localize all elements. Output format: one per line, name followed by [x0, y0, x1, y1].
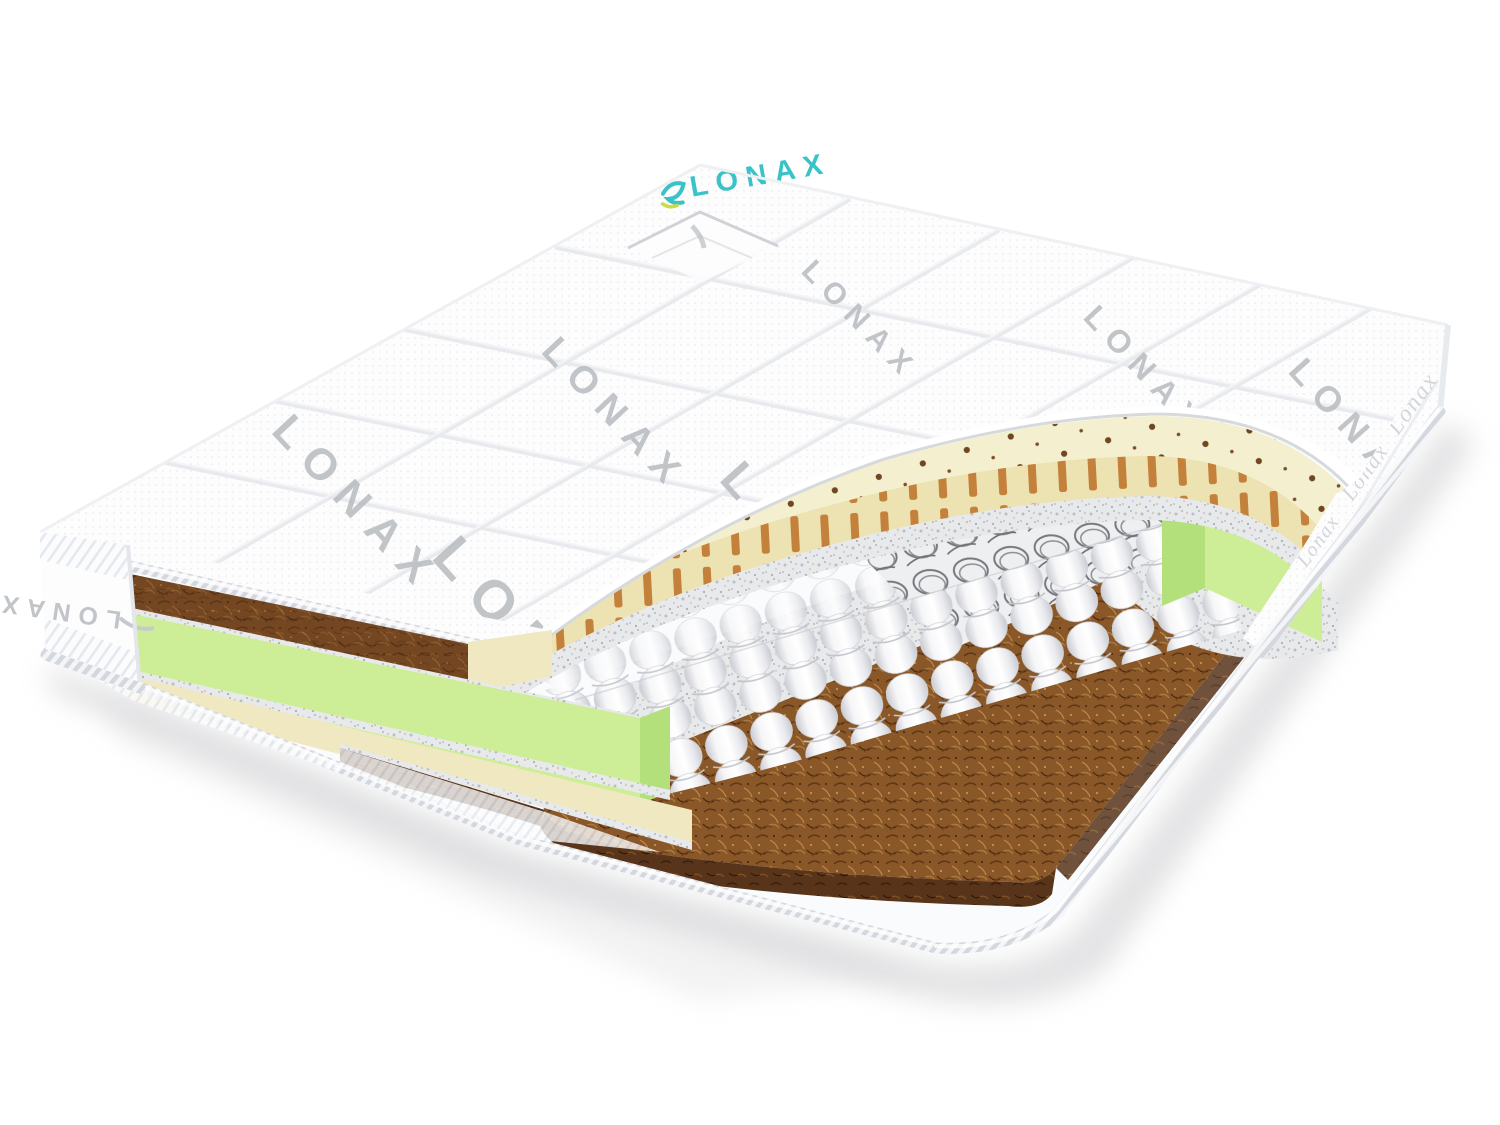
product-photo-mattress-cutaway: LONAX LONAX LONAX LONAX LONAX LONAX LONA… — [0, 0, 1500, 1125]
mattress-illustration: LONAX LONAX LONAX LONAX LONAX LONAX LONA… — [0, 0, 1500, 1125]
